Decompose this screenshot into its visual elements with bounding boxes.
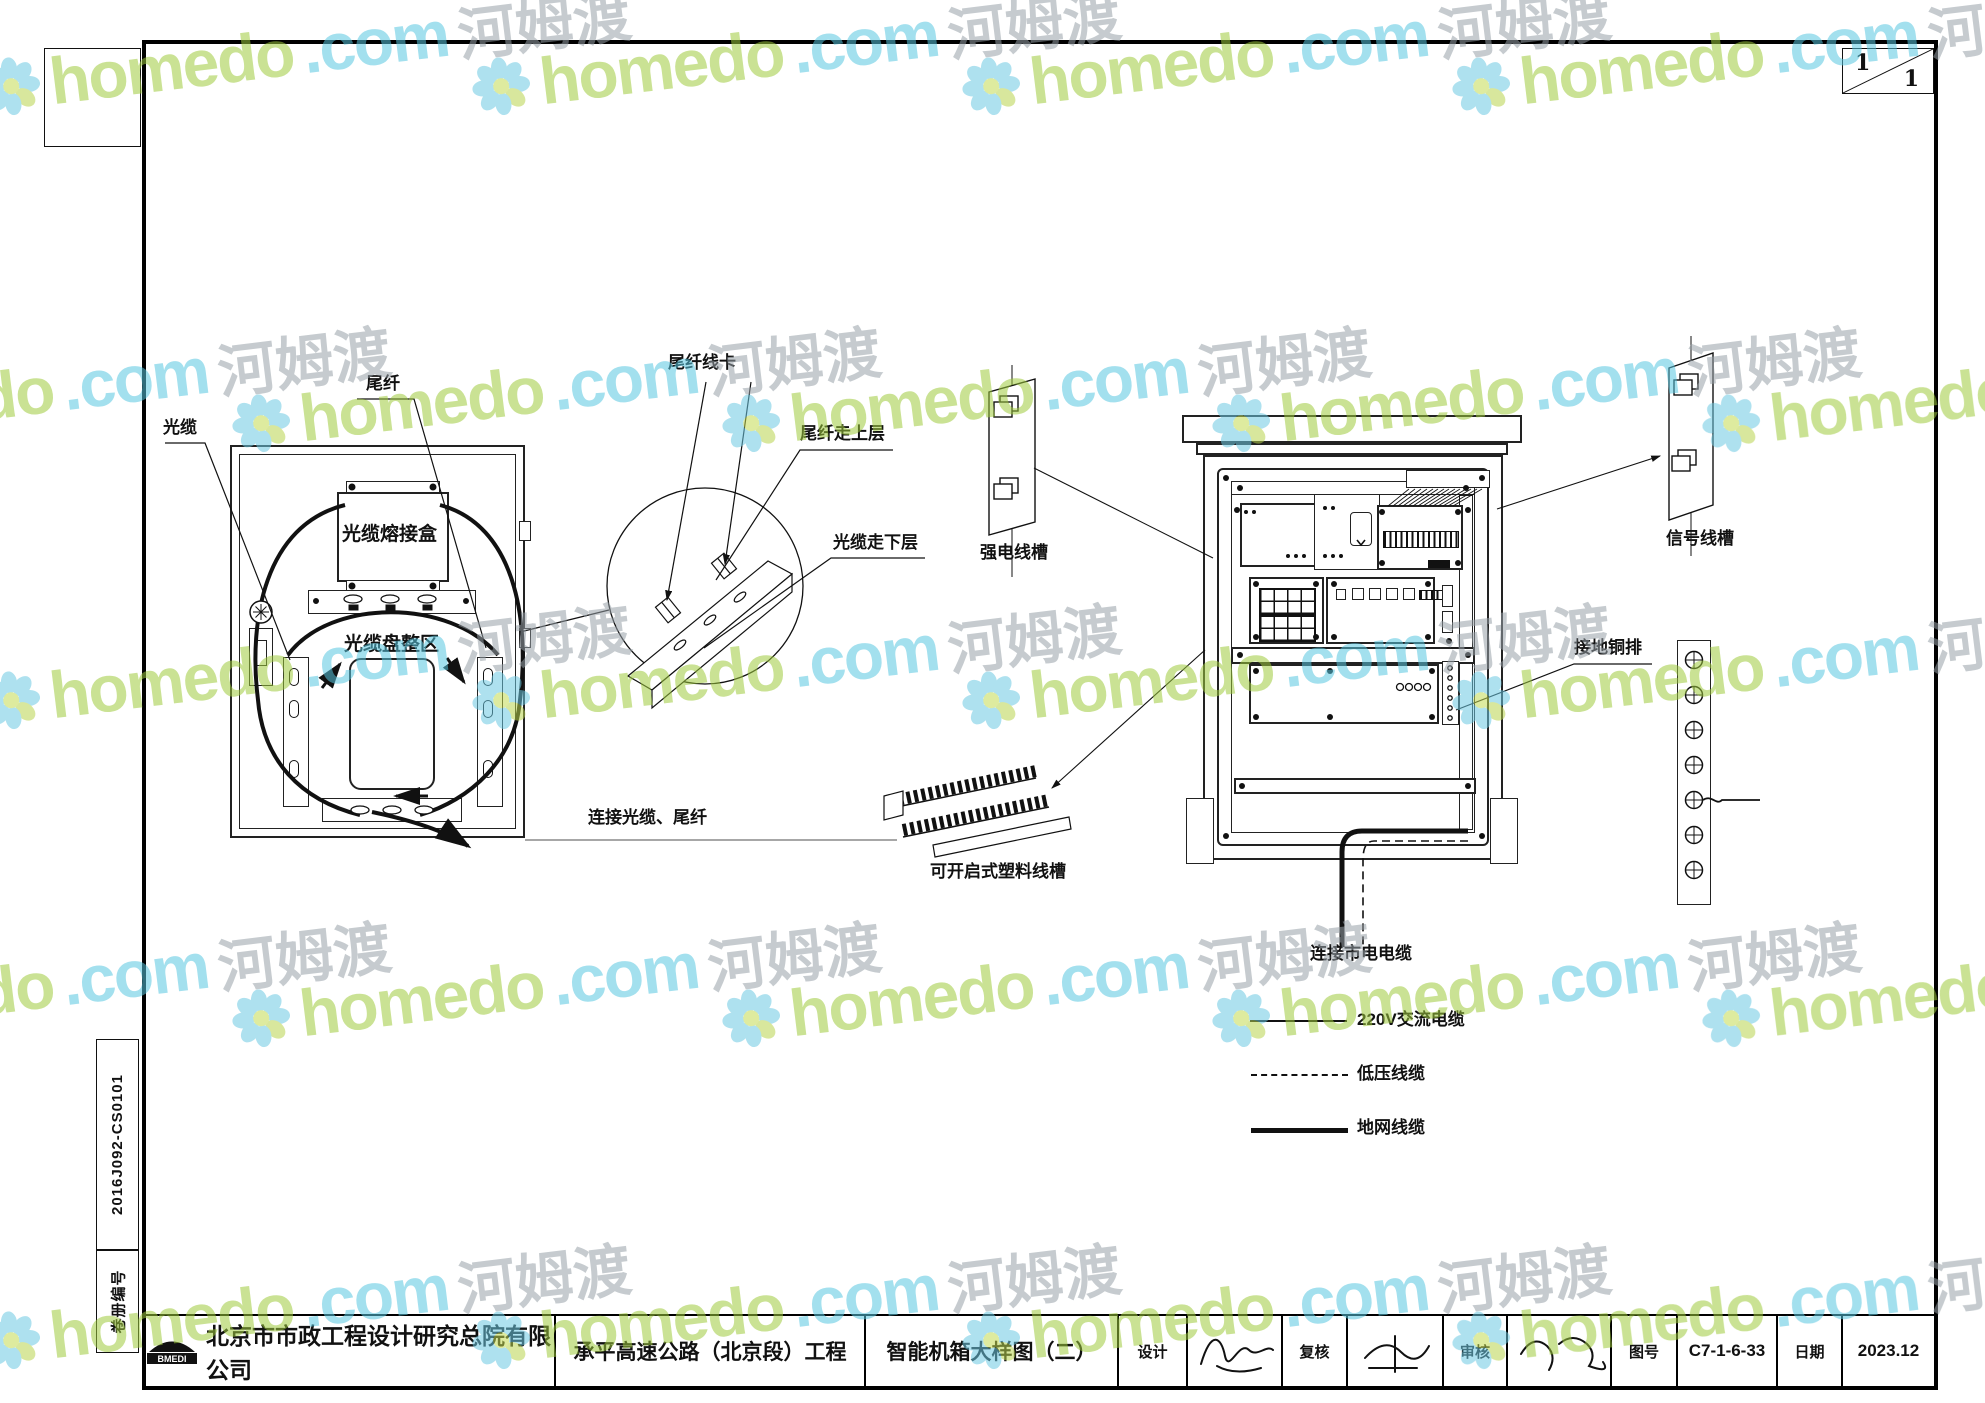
review-signature xyxy=(1351,1322,1439,1380)
drawing-no-value: C7-1-6-33 xyxy=(1689,1341,1766,1361)
drawing-no-cell: C7-1-6-33 xyxy=(1676,1316,1776,1386)
project-cell: 承平高速公路（北京段）工程 xyxy=(554,1316,864,1386)
sheet-number-box: 1 1 xyxy=(1842,48,1934,94)
drawing-frame: 1 1 BMEDI 北京市市政工程设计研究总院有限公司 承平高速公路（北京段）工… xyxy=(142,40,1938,1390)
audit-signature-cell xyxy=(1506,1316,1610,1386)
date-cell: 2023.12 xyxy=(1841,1316,1934,1386)
drawing-title: 智能机箱大样图（二） xyxy=(887,1336,1097,1366)
date-label: 日期 xyxy=(1794,1341,1824,1362)
design-signature-cell xyxy=(1186,1316,1281,1386)
drawing-title-cell: 智能机箱大样图（二） xyxy=(864,1316,1117,1386)
company-name: 北京市市政工程设计研究总院有限公司 xyxy=(206,1317,554,1385)
design-label-cell: 设计 xyxy=(1117,1316,1186,1386)
drawing-sheet: 光缆 尾纤 光缆熔接盒 光缆盘整区 连接光缆、尾纤 尾纤线卡 尾纤走上层 光缆走… xyxy=(0,0,1985,1403)
corner-registration-box xyxy=(44,48,141,147)
design-signature xyxy=(1191,1322,1279,1380)
drawing-no-label-cell: 图号 xyxy=(1610,1316,1676,1386)
review-label-cell: 复核 xyxy=(1281,1316,1346,1386)
drawing-no-label: 图号 xyxy=(1629,1341,1659,1362)
date-label-cell: 日期 xyxy=(1776,1316,1841,1386)
volume-number-band: 2016J092-CS0101 xyxy=(96,1039,139,1250)
volume-label-text: 卷册编号 xyxy=(107,1269,128,1333)
volume-number-text: 2016J092-CS0101 xyxy=(109,1074,126,1215)
date-value: 2023.12 xyxy=(1858,1341,1919,1361)
review-label: 复核 xyxy=(1299,1341,1329,1362)
sheet-number-bottom: 1 xyxy=(1904,66,1919,92)
bmedi-logo: BMEDI xyxy=(146,1338,198,1365)
project-name: 承平高速公路（北京段）工程 xyxy=(574,1336,847,1366)
sheet-chrome: 2016J092-CS0101 卷册编号 1 1 BMEDI xyxy=(0,0,1985,1403)
svg-text:BMEDI: BMEDI xyxy=(158,1354,187,1364)
title-block: BMEDI 北京市市政工程设计研究总院有限公司 承平高速公路（北京段）工程 智能… xyxy=(146,1314,1934,1386)
audit-label: 审核 xyxy=(1460,1341,1490,1362)
audit-label-cell: 审核 xyxy=(1442,1316,1506,1386)
review-signature-cell xyxy=(1346,1316,1442,1386)
volume-label-band: 卷册编号 xyxy=(96,1250,139,1353)
design-label: 设计 xyxy=(1137,1341,1167,1362)
company-cell: BMEDI 北京市市政工程设计研究总院有限公司 xyxy=(146,1316,554,1386)
audit-signature xyxy=(1511,1322,1607,1380)
sheet-number-top: 1 xyxy=(1855,50,1870,76)
